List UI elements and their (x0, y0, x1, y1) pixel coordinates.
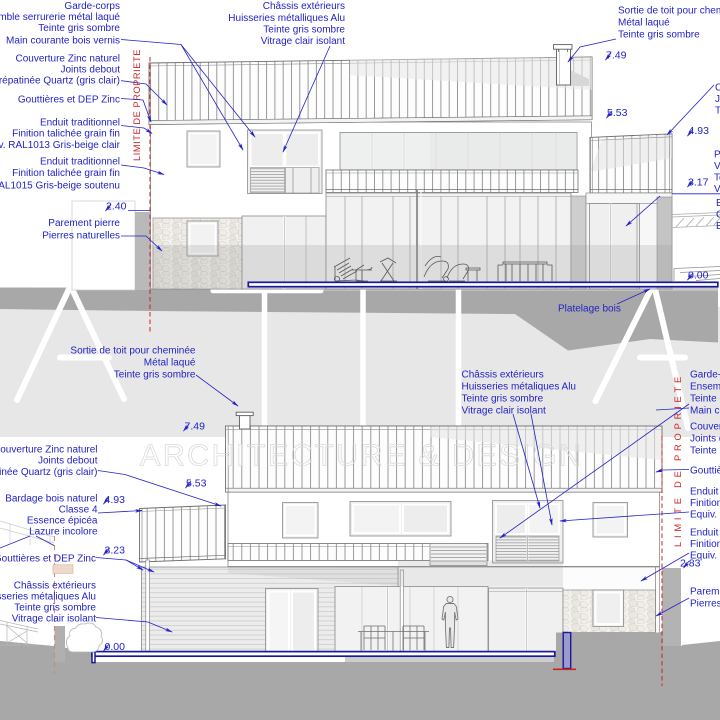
svg-text:Vitrage isolant: Vitrage isolant (714, 184, 720, 195)
svg-text:Finition talichée: Finition talichée (690, 539, 720, 550)
svg-text:Teinte gris sombre: Teinte gris sombre (462, 394, 544, 405)
svg-text:Platelage bois: Platelage bois (558, 304, 621, 315)
svg-text:Enduit traditionnel: Enduit traditionnel (690, 528, 720, 539)
svg-text:LIMITE DE PROPRIETE: LIMITE DE PROPRIETE (673, 373, 683, 547)
svg-text:Huisseries métaliques Alu: Huisseries métaliques Alu (0, 592, 96, 603)
svg-text:Couverture Zinc: Couverture Zinc (690, 422, 720, 433)
svg-text:Gouttières et DEP Zinc: Gouttières et DEP Zinc (0, 554, 96, 565)
svg-text:Bardage bois naturel: Bardage bois naturel (5, 494, 97, 505)
svg-text:Sortie de toit pour cheminée: Sortie de toit pour cheminée (618, 6, 720, 17)
svg-text:Parement pierre: Parement pierre (690, 587, 720, 598)
svg-text:Vitrage clair isolant: Vitrage clair isolant (462, 406, 547, 417)
svg-text:Vitrage clair isolant: Vitrage clair isolant (261, 36, 346, 47)
svg-text:Huisseries métalliques Alu: Huisseries métalliques Alu (228, 13, 345, 24)
svg-text:Teinte gris sombre: Teinte gris sombre (38, 23, 120, 34)
svg-text:Enduit traditionnel: Enduit traditionnel (40, 118, 120, 129)
svg-text:Classe 4: Classe 4 (59, 505, 98, 516)
svg-text:Gouttières et DEP Zinc: Gouttières et DEP Zinc (18, 95, 120, 106)
svg-text:Ensemble serrurerie métal laqu: Ensemble serrurerie métal laqué (0, 12, 120, 23)
svg-text:Joints debout: Joints debout (715, 94, 720, 105)
svg-text:Pierres naturelles: Pierres naturelles (690, 599, 720, 610)
svg-text:Teinte gris sombre: Teinte gris sombre (114, 370, 196, 381)
svg-text:Métal laqué: Métal laqué (618, 18, 670, 29)
svg-text:Couverture Zinc naturel: Couverture Zinc naturel (0, 445, 98, 456)
svg-text:Equiv. RAL: Equiv. RAL (716, 221, 720, 232)
svg-text:Joints debout: Joints debout (38, 456, 98, 467)
svg-text:Châssis extérieurs: Châssis extérieurs (263, 1, 345, 12)
svg-text:Equiv. RAL1013: Equiv. RAL1013 (690, 510, 720, 521)
svg-text:0.00: 0.00 (105, 641, 126, 653)
svg-text:Portes fenêtres coulissantes: Portes fenêtres coulissantes (714, 150, 720, 161)
svg-text:Enduit traditionnel: Enduit traditionnel (690, 487, 720, 498)
svg-text:Teinte prépatinée: Teinte prépatinée (690, 446, 720, 457)
svg-text:Vitrage clair isolant: Vitrage clair isolant (12, 614, 97, 625)
svg-text:Huisseries métaliques Alu: Huisseries métaliques Alu (462, 382, 577, 393)
svg-text:Teinte gris sombre: Teinte gris sombre (14, 603, 96, 614)
svg-text:Equiv. RAL1015: Equiv. RAL1015 (690, 551, 720, 562)
svg-text:Lazure incolore: Lazure incolore (29, 527, 98, 538)
svg-text:Finition prépatinée Quartz (gr: Finition prépatinée Quartz (gris clair) (0, 76, 120, 87)
svg-text:Finition talichée grain fin: Finition talichée grain fin (12, 168, 120, 179)
svg-text:RAL1015 Gris-beige soutenu: RAL1015 Gris-beige soutenu (0, 181, 120, 192)
svg-text:Enduit traditionnel: Enduit traditionnel (716, 198, 720, 209)
svg-text:Couverture Zinc naturel: Couverture Zinc naturel (16, 54, 121, 65)
svg-text:Joints debout: Joints debout (61, 65, 121, 76)
svg-text:Equiv. RAL1013 Gris-beige clai: Equiv. RAL1013 Gris-beige clair (0, 140, 121, 151)
svg-text:Parement pierre: Parement pierre (48, 218, 120, 229)
svg-text:Ensemble serrurerie: Ensemble serrurerie (690, 382, 720, 393)
svg-text:Finition talichée: Finition talichée (690, 498, 720, 509)
svg-text:Garde-corps: Garde-corps (64, 1, 120, 12)
svg-text:Couverture Zinc naturel: Couverture Zinc naturel (715, 83, 720, 94)
svg-text:Vitrage clair isolant: Vitrage clair isolant (714, 161, 720, 172)
svg-text:Main courante bois: Main courante bois (690, 406, 720, 417)
svg-text:Teinte prépatinée: Teinte prépatinée (715, 106, 720, 117)
svg-text:Enduit traditionnel: Enduit traditionnel (40, 157, 120, 168)
svg-text:Main courante bois vernis: Main courante bois vernis (6, 36, 120, 47)
svg-text:Métal laqué: Métal laqué (144, 358, 196, 369)
svg-text:Garde-corps: Garde-corps (690, 370, 720, 381)
svg-text:Teinte gris sombre: Teinte gris sombre (714, 173, 720, 184)
svg-text:Châssis extérieurs: Châssis extérieurs (14, 581, 96, 592)
svg-text:Sortie de toit pour cheminée: Sortie de toit pour cheminée (70, 346, 196, 357)
svg-text:Couleur gris: Couleur gris (716, 210, 720, 221)
svg-text:Essence épicéa: Essence épicéa (27, 516, 98, 527)
svg-text:Châssis extérieurs: Châssis extérieurs (462, 370, 544, 381)
svg-text:Teinte gris sombre: Teinte gris sombre (690, 394, 720, 405)
svg-text:Finition prépatinée Quartz (gr: Finition prépatinée Quartz (gris clair) (0, 467, 98, 478)
svg-text:LIMITE DE PROPRIETE: LIMITE DE PROPRIETE (132, 49, 142, 161)
svg-text:Gouttières et DEP: Gouttières et DEP (690, 466, 720, 477)
svg-text:4.93: 4.93 (105, 494, 126, 506)
svg-text:Pierres naturelles: Pierres naturelles (42, 231, 120, 242)
svg-text:Teinte gris sombre: Teinte gris sombre (618, 30, 700, 41)
svg-text:Teinte gris sombre: Teinte gris sombre (263, 25, 345, 36)
svg-text:Joints debout: Joints debout (690, 434, 720, 445)
svg-text:Finition talichée grain fin: Finition talichée grain fin (12, 129, 120, 140)
svg-text:ARCHITECTURE & DESIGN: ARCHITECTURE & DESIGN (140, 439, 588, 473)
